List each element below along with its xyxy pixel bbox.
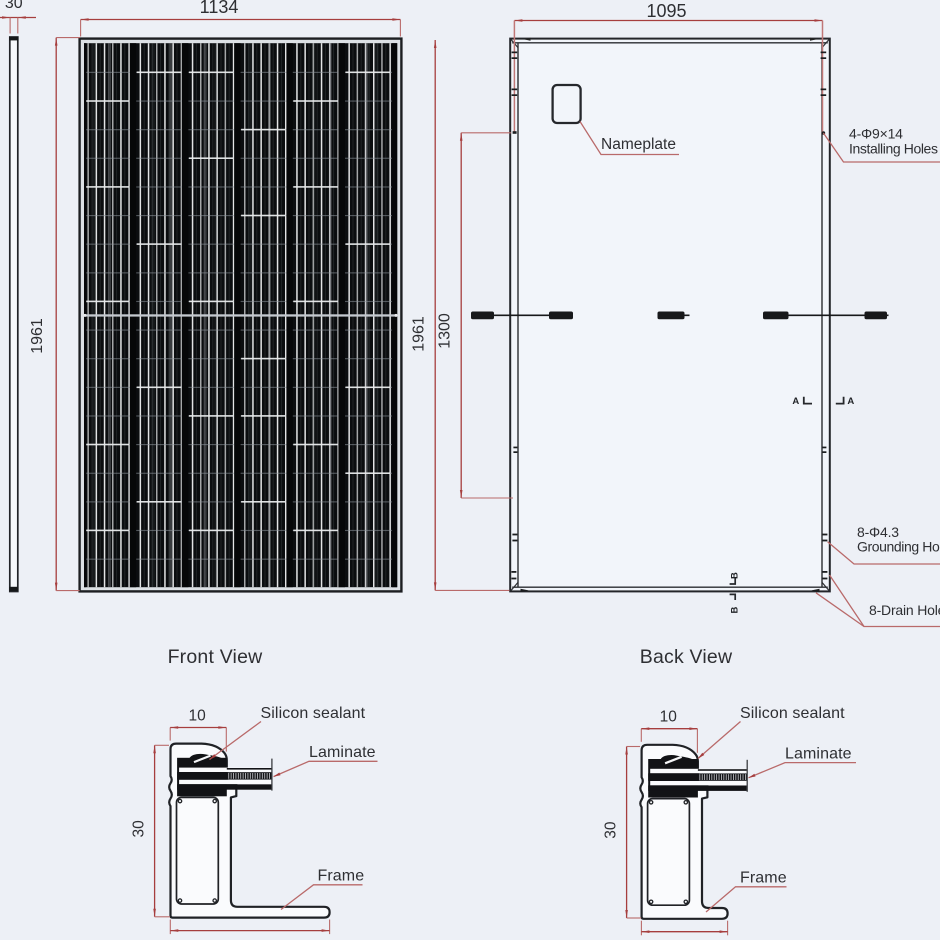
- svg-text:4-Φ9×14: 4-Φ9×14: [849, 126, 903, 142]
- svg-text:30: 30: [131, 820, 148, 838]
- svg-text:Grounding Hole: Grounding Hole: [857, 539, 940, 555]
- svg-text:Installing Holes: Installing Holes: [849, 141, 938, 157]
- svg-text:Back View: Back View: [640, 646, 733, 668]
- svg-text:10: 10: [189, 707, 207, 724]
- svg-text:1961: 1961: [29, 318, 46, 354]
- svg-text:Frame: Frame: [740, 870, 787, 887]
- svg-text:Laminate: Laminate: [309, 744, 376, 761]
- svg-text:1134: 1134: [200, 0, 239, 17]
- svg-text:1095: 1095: [646, 1, 686, 21]
- svg-text:B: B: [730, 606, 741, 613]
- svg-text:B: B: [730, 572, 741, 579]
- svg-text:1961: 1961: [411, 316, 428, 352]
- svg-text:Laminate: Laminate: [785, 746, 852, 763]
- svg-text:Silicon sealant: Silicon sealant: [740, 705, 845, 722]
- svg-text:Front View: Front View: [168, 646, 264, 668]
- svg-text:A: A: [847, 396, 854, 407]
- svg-text:30: 30: [603, 821, 620, 839]
- svg-text:10: 10: [660, 709, 678, 726]
- svg-text:A: A: [792, 396, 799, 407]
- svg-text:Frame: Frame: [318, 868, 365, 885]
- svg-text:1300: 1300: [437, 313, 454, 349]
- svg-text:Nameplate: Nameplate: [601, 136, 676, 153]
- svg-text:8-Drain Hole: 8-Drain Hole: [869, 602, 940, 618]
- svg-text:Silicon sealant: Silicon sealant: [261, 705, 366, 722]
- svg-text:30: 30: [5, 0, 23, 12]
